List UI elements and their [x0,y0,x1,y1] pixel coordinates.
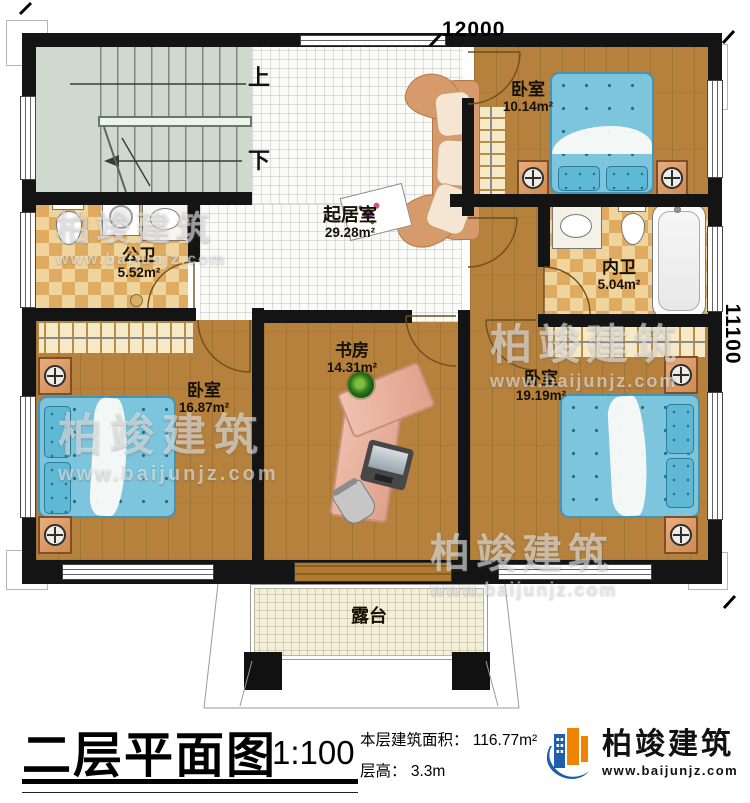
floor-height-label: 层高： [360,763,407,780]
room-label-bedroom-right: 卧室 19.19m² [516,369,566,403]
title-underline [22,779,358,793]
floor-stats: 本层建筑面积： 116.77m² 层高： 3.3m [360,728,537,781]
stair-down-label: 下 [248,143,270,175]
room-area: 10.14m² [503,99,553,114]
room-label-living: 起居室 29.28m² [323,205,377,240]
room-name: 起居室 [323,205,377,225]
room-name: 书房 [327,341,377,360]
brand-logo-icon [540,724,596,782]
dimension-right: 11100 [720,286,744,382]
room-area: 29.28m² [323,225,377,240]
brand-text-group: 柏竣建筑 www.baijunjz.com [602,728,738,778]
room-area: 16.87m² [179,400,229,415]
room-label-bath-private: 内卫 5.04m² [598,258,641,292]
floor-area-row: 本层建筑面积： 116.77m² [360,728,537,750]
roof-outline [204,584,519,708]
brand-website: www.baijunjz.com [602,763,738,778]
room-name: 露台 [351,606,387,626]
brand-logo: 柏竣建筑 www.baijunjz.com [540,724,738,782]
room-name: 卧室 [516,369,566,388]
page-title: 二层平面图 [22,716,277,787]
room-area: 14.31m² [327,360,377,375]
floor-area-label: 本层建筑面积： [360,732,469,749]
room-name: 内卫 [598,258,641,277]
room-label-study: 书房 14.31m² [327,341,377,375]
room-name: 卧室 [503,80,553,99]
title-block: 二层平面图 1:100 本层建筑面积： 116.77m² 层高： 3.3m [0,710,750,803]
dimension-top: 12000 [442,18,505,42]
room-area: 5.04m² [598,277,641,292]
room-area: 5.52m² [118,265,161,280]
stair-up-label: 上 [248,60,270,92]
room-label-bath-public: 公卫 5.52m² [118,246,161,280]
brand-name: 柏竣建筑 [602,728,738,761]
stair-direction-lines [70,84,246,192]
room-area: 19.19m² [516,388,566,403]
floor-area-value: 116.77m² [473,732,537,749]
room-name: 公卫 [118,246,161,265]
floor-height-value: 3.3m [411,763,445,780]
drawing-scale: 1:100 [272,734,355,772]
dimension-ticks [20,3,735,608]
floor-plan-page: 起居室 29.28m² 卧室 10.14m² 公卫 5.52m² 内卫 5.04… [0,0,750,803]
room-label-bedroom-left: 卧室 16.87m² [179,381,229,415]
room-label-terrace: 露台 [351,606,387,626]
room-name: 卧室 [179,381,229,400]
floor-plan-drawing: 起居室 29.28m² 卧室 10.14m² 公卫 5.52m² 内卫 5.04… [0,0,750,710]
floor-height-row: 层高： 3.3m [360,759,537,781]
room-label-bedroom-top: 卧室 10.14m² [503,80,553,114]
